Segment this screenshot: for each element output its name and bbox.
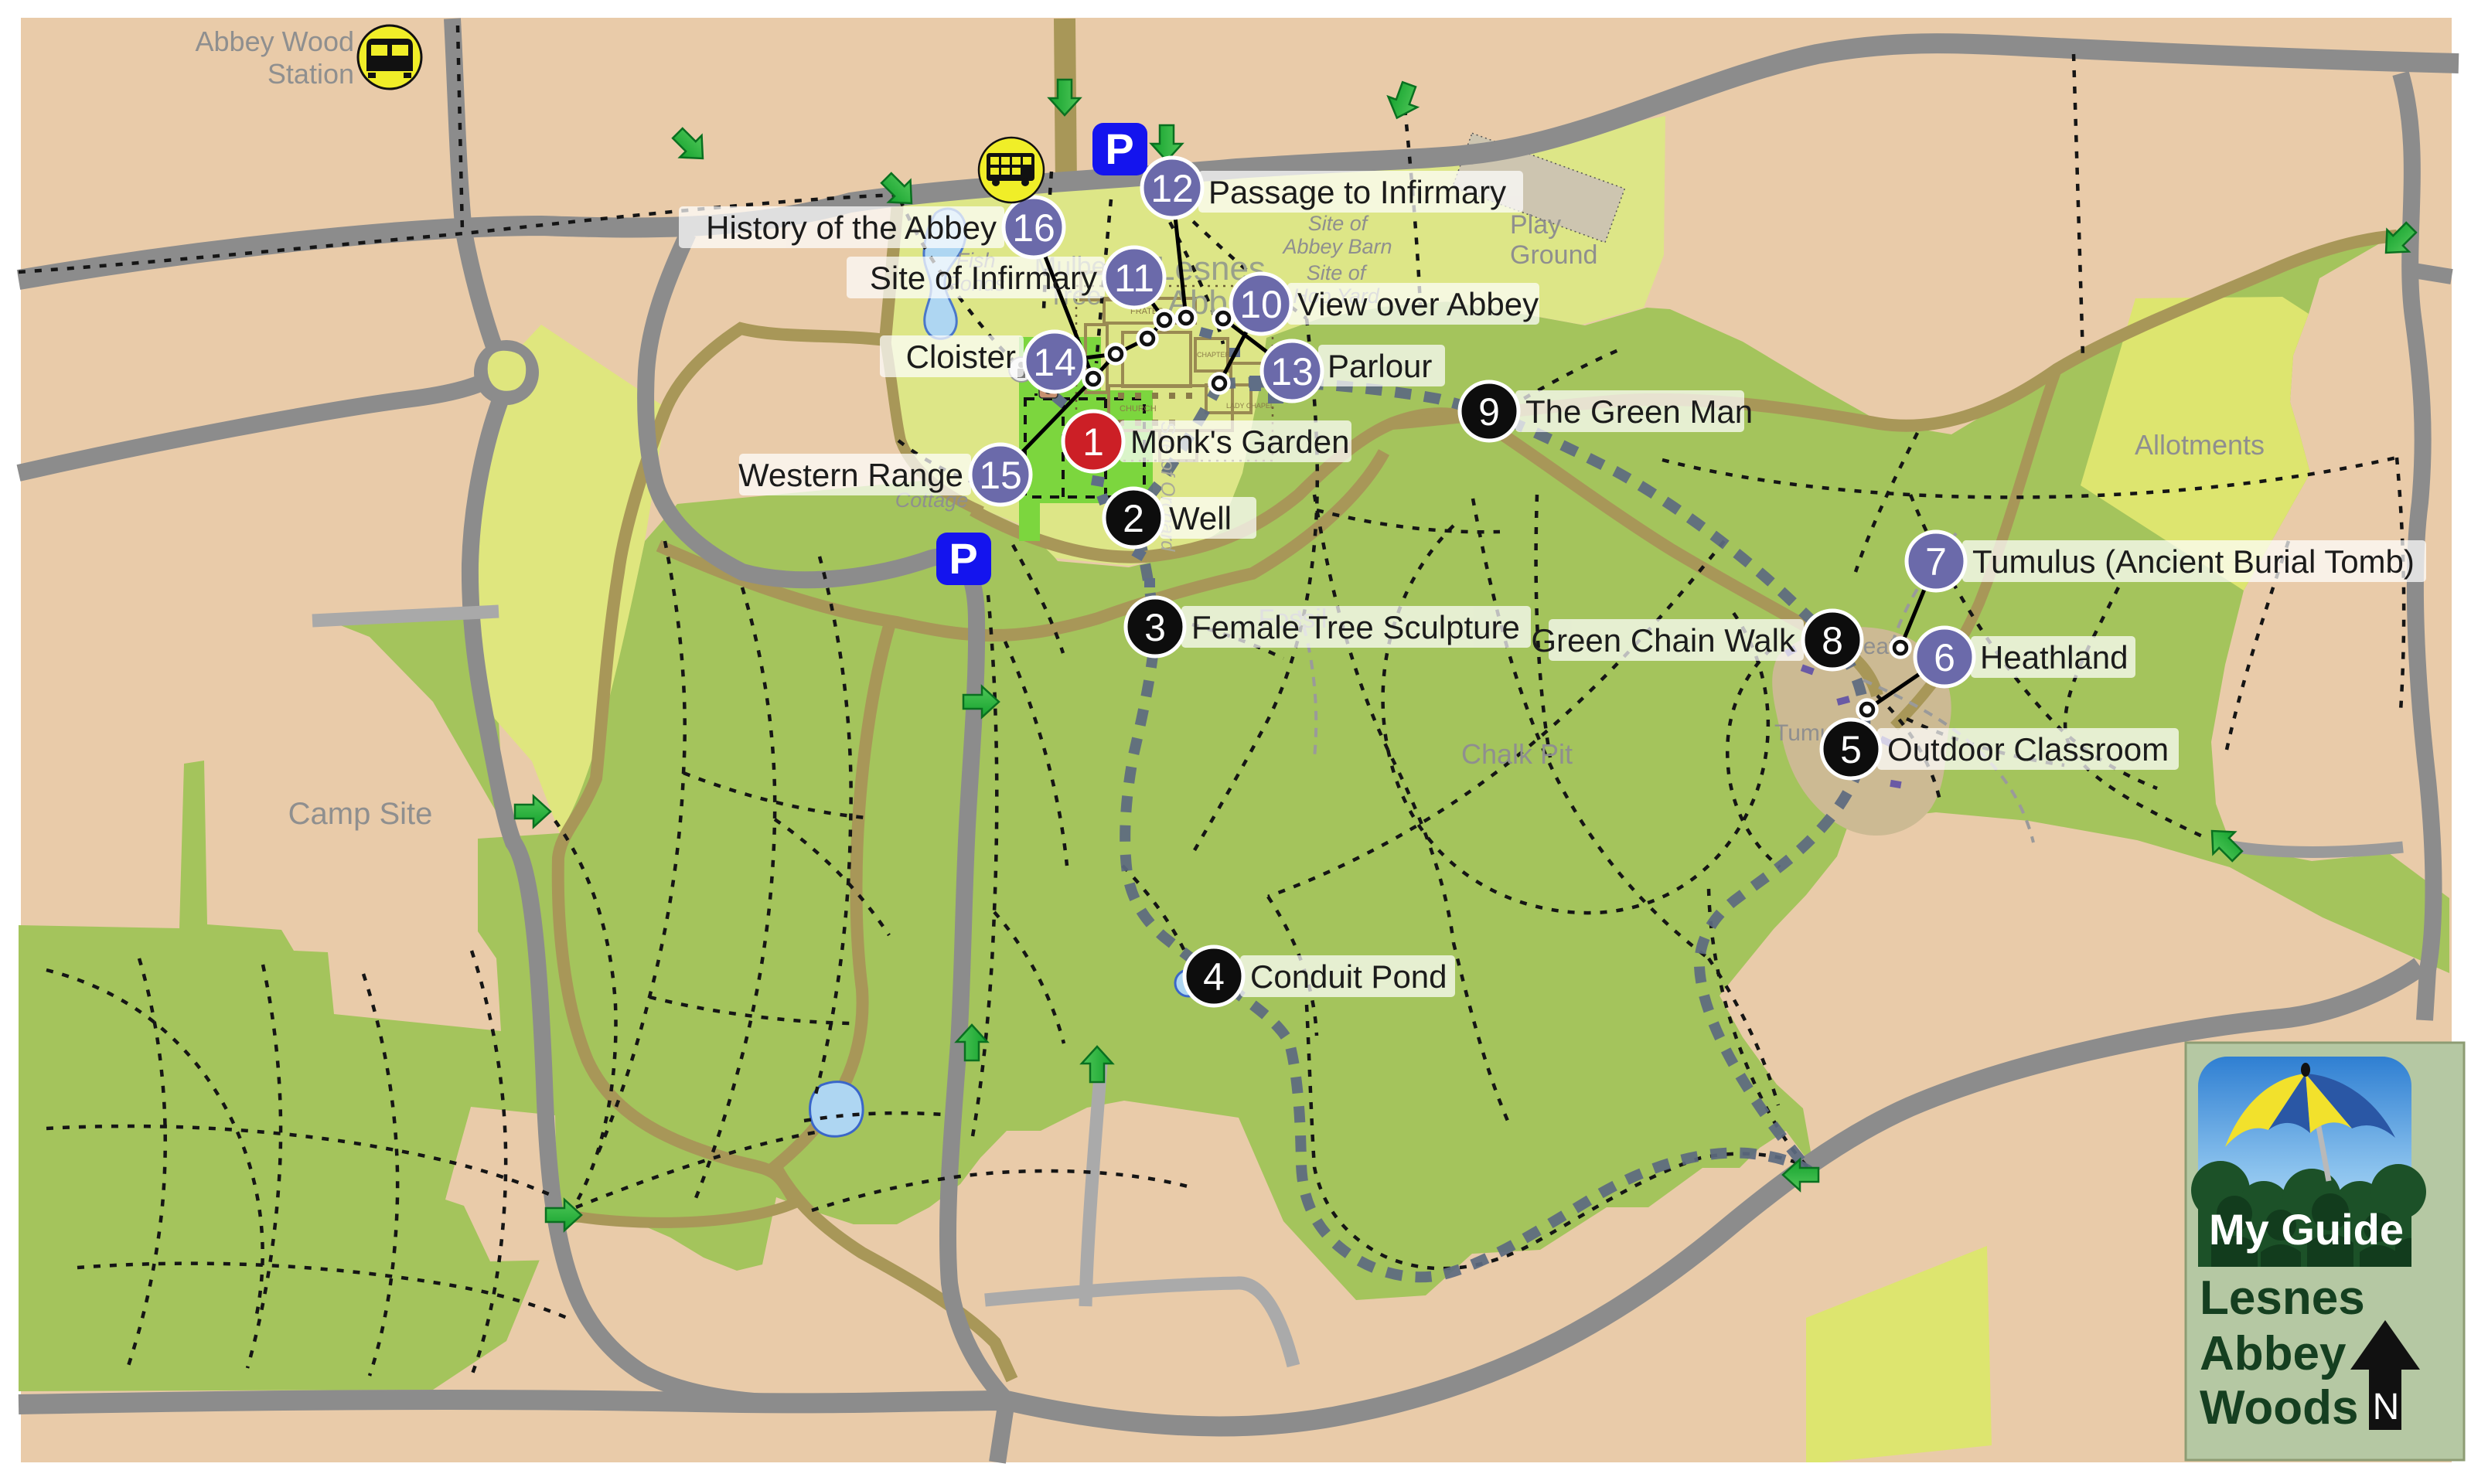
- svg-text:Woods: Woods: [2200, 1381, 2359, 1435]
- svg-text:7: 7: [1925, 540, 1947, 584]
- svg-text:Female Tree Sculpture: Female Tree Sculpture: [1191, 609, 1520, 645]
- svg-text:Allotments: Allotments: [2135, 429, 2265, 461]
- svg-text:CHAPTER: CHAPTER: [1197, 351, 1231, 359]
- svg-text:Parlour: Parlour: [1328, 348, 1432, 384]
- svg-text:Lesnes: Lesnes: [2200, 1271, 2365, 1325]
- svg-text:15: 15: [979, 454, 1022, 497]
- svg-text:Conduit Pond: Conduit Pond: [1250, 958, 1447, 995]
- svg-text:Camp Site: Camp Site: [288, 797, 433, 831]
- svg-text:P: P: [949, 534, 977, 583]
- svg-text:8: 8: [1822, 619, 1843, 662]
- svg-text:P: P: [1105, 124, 1133, 173]
- svg-text:Heathland: Heathland: [1980, 639, 2128, 676]
- svg-text:12: 12: [1150, 167, 1194, 210]
- svg-text:Station: Station: [268, 58, 354, 90]
- svg-text:Well: Well: [1169, 500, 1232, 536]
- svg-text:Site of: Site of: [1308, 212, 1369, 235]
- svg-text:1: 1: [1082, 420, 1104, 464]
- svg-text:Outdoor Classroom: Outdoor Classroom: [1887, 731, 2169, 768]
- svg-text:4: 4: [1203, 955, 1225, 999]
- svg-text:16: 16: [1012, 206, 1055, 250]
- svg-text:Passage to Infirmary: Passage to Infirmary: [1208, 174, 1506, 210]
- svg-text:6: 6: [1934, 636, 1955, 679]
- svg-text:10: 10: [1239, 283, 1283, 326]
- svg-text:Site of: Site of: [1307, 261, 1368, 284]
- svg-text:Cloister: Cloister: [906, 339, 1016, 375]
- svg-text:Monk's Garden: Monk's Garden: [1130, 424, 1349, 460]
- svg-text:13: 13: [1270, 350, 1314, 393]
- svg-text:N: N: [2373, 1387, 2400, 1428]
- svg-text:The Green Man: The Green Man: [1525, 393, 1753, 430]
- svg-text:9: 9: [1478, 390, 1500, 434]
- svg-text:Ground: Ground: [1510, 240, 1597, 270]
- svg-text:Chalk Pit: Chalk Pit: [1461, 738, 1573, 770]
- svg-text:Green Chain Walk: Green Chain Walk: [1531, 622, 1796, 659]
- svg-text:View over Abbey: View over Abbey: [1297, 286, 1539, 322]
- svg-text:5: 5: [1840, 728, 1862, 771]
- svg-text:CHURCH: CHURCH: [1120, 404, 1157, 414]
- svg-text:Western Range: Western Range: [738, 457, 963, 493]
- svg-text:14: 14: [1033, 341, 1076, 384]
- svg-text:Tumulus (Ancient Burial Tomb): Tumulus (Ancient Burial Tomb): [1972, 543, 2415, 580]
- svg-text:11: 11: [1114, 257, 1154, 300]
- svg-text:My Guide: My Guide: [2209, 1205, 2404, 1254]
- svg-text:Abbey: Abbey: [2200, 1327, 2347, 1380]
- svg-text:Abbey Wood: Abbey Wood: [196, 26, 354, 57]
- svg-text:LADY CHAPEL: LADY CHAPEL: [1226, 402, 1274, 410]
- svg-text:History of the Abbey: History of the Abbey: [706, 209, 997, 246]
- svg-text:Abbey Barn: Abbey Barn: [1281, 235, 1392, 258]
- svg-text:Site of Infirmary: Site of Infirmary: [870, 260, 1097, 296]
- svg-text:2: 2: [1123, 497, 1144, 540]
- svg-text:3: 3: [1144, 606, 1166, 649]
- svg-text:Play: Play: [1510, 210, 1561, 240]
